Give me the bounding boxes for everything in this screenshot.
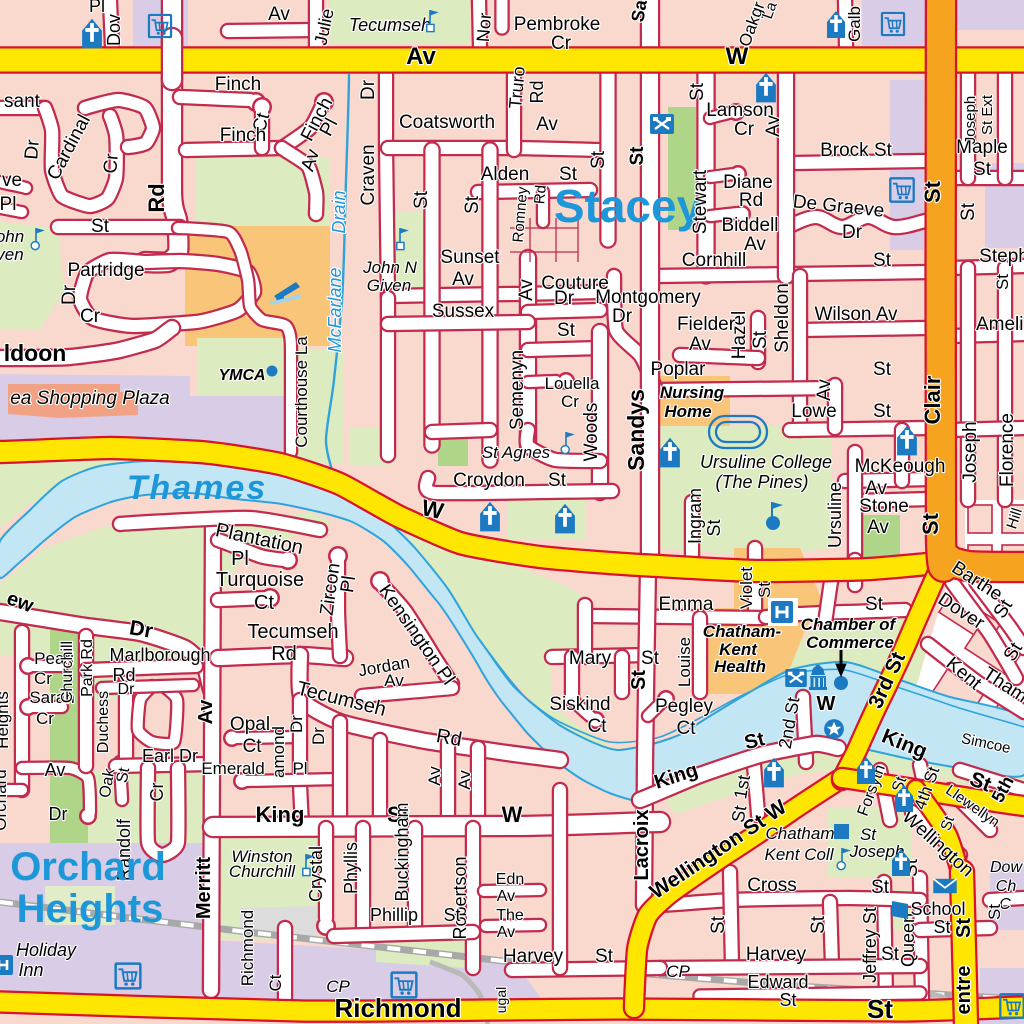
svg-text:Robertson: Robertson <box>450 856 470 939</box>
svg-text:Dr: Dr <box>287 715 306 733</box>
svg-text:Brock St: Brock St <box>820 140 893 161</box>
svg-text:Emerald: Emerald <box>201 759 264 778</box>
svg-text:St Ext: St Ext <box>979 94 996 135</box>
svg-text:St: St <box>411 190 432 209</box>
svg-text:Violet: Violet <box>737 567 756 609</box>
svg-text:Harvey: Harvey <box>746 944 807 965</box>
svg-text:Montgomery: Montgomery <box>595 287 701 308</box>
svg-text:St: St <box>628 670 650 690</box>
svg-text:Richmond: Richmond <box>238 910 257 987</box>
svg-text:St: St <box>443 905 460 925</box>
svg-text:Cornhill: Cornhill <box>682 250 746 271</box>
svg-text:St: St <box>873 359 892 380</box>
svg-text:Cr: Cr <box>734 119 755 140</box>
svg-text:entre: entre <box>953 966 975 1015</box>
svg-text:Ct: Ct <box>588 716 608 737</box>
svg-text:Rd: Rd <box>739 190 763 211</box>
svg-text:Galb: Galb <box>845 6 864 42</box>
svg-text:Ursuline: Ursuline <box>825 482 845 548</box>
svg-text:Given: Given <box>367 276 411 295</box>
svg-text:Edn: Edn <box>496 871 524 888</box>
svg-text:Dr: Dr <box>554 288 575 309</box>
svg-text:Joseph: Joseph <box>962 96 979 144</box>
svg-text:St: St <box>595 946 614 967</box>
svg-text:Av: Av <box>195 699 217 725</box>
svg-text:Alden: Alden <box>481 164 530 185</box>
svg-text:Heights: Heights <box>17 887 164 931</box>
svg-text:St: St <box>588 150 609 169</box>
svg-text:St: St <box>750 330 771 349</box>
svg-text:ea Shopping Plaza: ea Shopping Plaza <box>10 388 170 409</box>
svg-text:St: St <box>973 159 992 180</box>
svg-text:Tecumseh: Tecumseh <box>247 621 338 643</box>
svg-text:Chatham: Chatham <box>766 824 835 843</box>
svg-text:Finch: Finch <box>215 74 261 95</box>
svg-text:Av: Av <box>536 114 558 135</box>
svg-text:ven: ven <box>0 245 24 264</box>
svg-text:Av: Av <box>497 888 515 905</box>
svg-text:Av: Av <box>452 269 474 290</box>
svg-text:Rd: Rd <box>271 643 297 665</box>
svg-text:Commerce: Commerce <box>806 633 894 652</box>
svg-text:Drain: Drain <box>329 190 349 233</box>
svg-text:St: St <box>933 917 950 937</box>
svg-text:School: School <box>910 899 965 919</box>
svg-text:ohn: ohn <box>0 227 24 246</box>
svg-text:Steph: Steph <box>979 246 1024 267</box>
svg-text:Earl Dr: Earl Dr <box>142 746 198 766</box>
svg-text:Orchard: Orchard <box>10 845 166 889</box>
svg-text:Chamber of: Chamber of <box>801 615 898 634</box>
svg-text:Jeffrey St: Jeffrey St <box>860 907 880 983</box>
svg-text:Av: Av <box>45 760 66 780</box>
svg-text:ugal: ugal <box>493 987 509 1013</box>
svg-text:Cr: Cr <box>561 392 579 411</box>
svg-text:YMCA: YMCA <box>218 367 265 384</box>
svg-text:Pegley: Pegley <box>655 696 714 717</box>
svg-text:Ursuline College: Ursuline College <box>700 452 832 472</box>
svg-text:Woods: Woods <box>581 403 602 462</box>
svg-text:Health: Health <box>714 657 766 676</box>
svg-text:Harvey: Harvey <box>503 946 564 967</box>
svg-text:McKeough: McKeough <box>855 456 946 477</box>
svg-text:Cr: Cr <box>551 33 572 54</box>
svg-text:Mary: Mary <box>569 648 612 669</box>
svg-text:Thames: Thames <box>127 469 268 507</box>
svg-text:Edward: Edward <box>747 972 808 992</box>
svg-text:St: St <box>687 82 708 101</box>
svg-text:Dow: Dow <box>990 859 1023 876</box>
svg-text:Truro: Truro <box>505 66 529 110</box>
svg-text:Sussex: Sussex <box>432 301 495 322</box>
svg-text:St: St <box>958 202 979 221</box>
svg-text:Biddell: Biddell <box>721 215 778 236</box>
svg-text:Churchill: Churchill <box>59 641 76 703</box>
svg-text:Pembroke: Pembroke <box>514 14 601 35</box>
svg-text:Louise: Louise <box>675 637 694 687</box>
svg-text:Coatsworth: Coatsworth <box>399 112 495 133</box>
svg-text:St: St <box>557 320 576 341</box>
svg-text:St: St <box>918 512 943 535</box>
svg-text:Nor: Nor <box>473 12 495 43</box>
svg-text:Pl: Pl <box>337 574 360 594</box>
svg-text:Rd: Rd <box>144 183 169 212</box>
svg-text:Av: Av <box>384 671 404 690</box>
svg-text:Rd: Rd <box>531 184 550 205</box>
svg-text:Queen: Queen <box>898 913 918 967</box>
svg-text:Joseph: Joseph <box>960 421 981 482</box>
svg-text:Emma: Emma <box>659 594 714 615</box>
svg-text:Av: Av <box>744 234 766 255</box>
svg-text:Couture: Couture <box>541 273 609 294</box>
svg-text:St: St <box>873 401 892 422</box>
svg-text:Dr: Dr <box>309 727 328 745</box>
svg-text:Sheldon: Sheldon <box>772 283 793 353</box>
svg-text:St: St <box>953 918 975 938</box>
svg-text:(The Pines): (The Pines) <box>715 472 808 492</box>
svg-text:Ct: Ct <box>254 592 274 614</box>
svg-text:St: St <box>704 519 724 536</box>
svg-text:Av: Av <box>867 517 889 538</box>
svg-text:The: The <box>496 907 524 924</box>
svg-text:Stone: Stone <box>859 496 909 517</box>
svg-text:ve: ve <box>2 170 22 191</box>
svg-text:Dr: Dr <box>358 79 379 100</box>
svg-text:Cross: Cross <box>747 875 797 896</box>
svg-text:Av: Av <box>268 4 290 25</box>
svg-text:Nursing: Nursing <box>660 383 725 402</box>
svg-text:Craven: Craven <box>358 144 379 205</box>
svg-text:W: W <box>502 802 523 827</box>
svg-text:Dov: Dov <box>104 14 124 46</box>
svg-text:Lacroix: Lacroix <box>631 809 653 880</box>
svg-text:King: King <box>256 802 305 827</box>
svg-text:Pl: Pl <box>0 194 16 215</box>
svg-text:Amelia: Amelia <box>976 314 1024 335</box>
svg-text:Dr: Dr <box>118 681 136 698</box>
svg-text:Wilson Av: Wilson Av <box>814 304 898 325</box>
svg-text:CP: CP <box>666 962 690 981</box>
svg-text:Stacey: Stacey <box>554 180 703 232</box>
svg-text:Inn: Inn <box>18 960 43 980</box>
svg-text:St: St <box>867 994 893 1024</box>
svg-text:Cr: Cr <box>36 709 54 728</box>
svg-text:sant: sant <box>4 91 41 112</box>
svg-text:St: St <box>462 195 483 214</box>
svg-text:Home: Home <box>664 402 711 421</box>
svg-text:Dr: Dr <box>49 804 68 824</box>
svg-text:Cr: Cr <box>100 152 123 174</box>
svg-text:St: St <box>871 877 890 898</box>
svg-text:Av: Av <box>763 115 784 137</box>
svg-text:St: St <box>91 216 110 237</box>
svg-text:Siskind: Siskind <box>549 694 610 715</box>
svg-text:amond: amond <box>269 726 288 778</box>
svg-text:Courthouse La: Courthouse La <box>292 336 311 448</box>
svg-text:Av: Av <box>425 766 444 786</box>
svg-text:Fielder: Fielder <box>677 314 736 335</box>
svg-text:Rd: Rd <box>527 80 547 103</box>
svg-text:St: St <box>808 915 829 934</box>
svg-text:Av: Av <box>455 770 474 790</box>
svg-text:Cr: Cr <box>34 669 52 688</box>
svg-text:Marlborough: Marlborough <box>109 645 210 665</box>
svg-text:St: St <box>548 470 567 491</box>
svg-text:Phillip: Phillip <box>370 905 418 925</box>
svg-text:McFarlane: McFarlane <box>325 267 345 352</box>
svg-text:Ct: Ct <box>243 736 263 757</box>
svg-text:Ct: Ct <box>677 718 697 739</box>
svg-text:St: St <box>641 648 660 669</box>
svg-text:Av: Av <box>406 43 436 70</box>
svg-text:Cr: Cr <box>147 783 167 802</box>
svg-text:Av: Av <box>516 279 537 301</box>
svg-text:W: W <box>726 43 749 70</box>
svg-text:Croydon: Croydon <box>453 470 525 491</box>
svg-text:St: St <box>708 915 729 934</box>
svg-text:Opal: Opal <box>230 714 270 735</box>
svg-text:ldoon: ldoon <box>4 340 67 366</box>
svg-text:1st: 1st <box>730 773 754 800</box>
svg-text:Sa: Sa <box>627 0 651 24</box>
svg-text:Dr: Dr <box>612 306 633 327</box>
svg-text:Ingram: Ingram <box>685 488 705 544</box>
svg-text:Merritt: Merritt <box>193 857 215 920</box>
svg-text:Phyllis: Phyllis <box>341 842 361 894</box>
svg-text:St: St <box>755 582 774 598</box>
svg-text:Poplar: Poplar <box>651 359 707 380</box>
svg-text:St: St <box>627 146 648 166</box>
svg-text:Pl: Pl <box>231 548 249 570</box>
svg-text:Kent Coll: Kent Coll <box>765 845 835 864</box>
svg-text:St: St <box>873 250 892 271</box>
svg-text:Av: Av <box>814 379 835 401</box>
svg-text:Sunset: Sunset <box>440 247 500 268</box>
svg-text:Florence: Florence <box>997 413 1018 487</box>
svg-text:Buckingham: Buckingham <box>392 802 412 901</box>
svg-text:St: St <box>985 904 1004 920</box>
svg-text:Churchill: Churchill <box>229 862 296 881</box>
svg-text:St Agnes: St Agnes <box>482 443 551 462</box>
svg-text:Clair: Clair <box>920 375 945 424</box>
svg-text:Ch: Ch <box>996 878 1017 895</box>
svg-text:Sandys: Sandys <box>623 389 649 471</box>
svg-text:Finch: Finch <box>220 125 266 146</box>
svg-text:Ct: Ct <box>266 974 285 991</box>
svg-text:Duchess: Duchess <box>95 691 112 753</box>
svg-text:St: St <box>779 990 796 1010</box>
svg-text:W: W <box>817 693 836 715</box>
svg-text:Park Rd: Park Rd <box>79 639 96 697</box>
svg-text:Rd: Rd <box>435 725 464 751</box>
svg-text:St: St <box>865 594 884 615</box>
svg-text:Lowe: Lowe <box>791 401 836 422</box>
svg-text:Cr: Cr <box>80 306 101 327</box>
svg-text:Dr: Dr <box>842 222 863 243</box>
svg-text:Dr: Dr <box>21 138 44 160</box>
svg-text:Turquoise: Turquoise <box>216 569 304 591</box>
svg-text:Pl: Pl <box>89 0 105 16</box>
svg-text:Dr: Dr <box>59 284 80 305</box>
svg-text:St: St <box>993 274 1012 290</box>
svg-text:Holiday: Holiday <box>16 940 77 960</box>
svg-text:Heights: Heights <box>0 691 12 749</box>
svg-text:Orchard: Orchard <box>0 769 10 830</box>
svg-text:Av: Av <box>689 334 711 355</box>
svg-text:St: St <box>881 944 900 965</box>
svg-text:Louella: Louella <box>545 374 600 393</box>
svg-text:Dr: Dr <box>128 616 155 643</box>
svg-text:Semenyn: Semenyn <box>507 350 528 430</box>
svg-text:Av: Av <box>497 924 515 941</box>
svg-text:Partridge: Partridge <box>67 260 144 281</box>
svg-text:St: St <box>920 180 945 203</box>
svg-text:Stewart: Stewart <box>690 169 711 234</box>
svg-text:Tecumseh: Tecumseh <box>349 15 431 35</box>
svg-text:Pl: Pl <box>292 759 307 778</box>
svg-text:John N: John N <box>362 258 418 277</box>
